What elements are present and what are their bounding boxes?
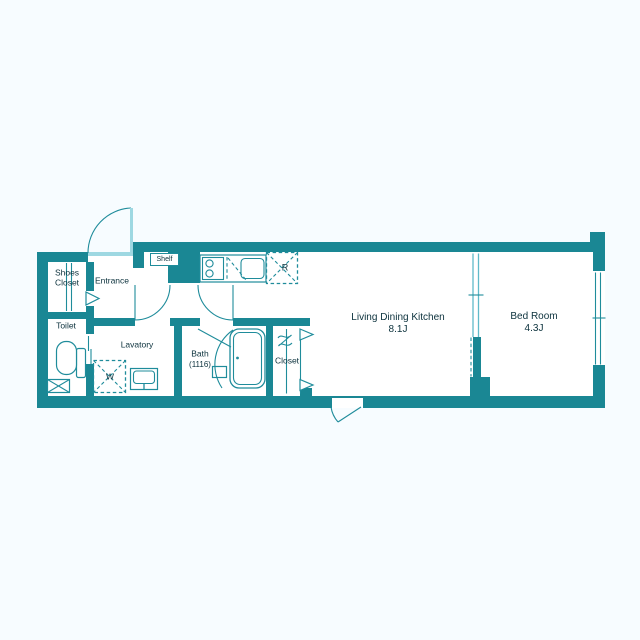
room-label-bath: Bath: [191, 350, 209, 359]
floor-plan: Shelf Shoes Closet Entrance Toilet Lavat…: [0, 0, 640, 640]
room-label-bedroom: Bed Room: [510, 312, 557, 323]
shelf-label: Shelf: [157, 256, 173, 263]
room-label-shoes-closet: Shoes: [55, 269, 79, 278]
balcony-door-leaf: [338, 407, 361, 422]
bath-hall-door-arc: [198, 285, 233, 320]
room-label-closet: Closet: [275, 357, 299, 366]
shelf-label-box: Shelf: [150, 253, 179, 266]
bathtub-outer: [230, 329, 265, 388]
washing-machine-mark: W: [106, 373, 114, 382]
fold-door-arrow-icon: [300, 380, 313, 391]
closet-hanger-icon: [278, 335, 292, 346]
toilet-tank: [77, 349, 86, 378]
room-label-toilet: Toilet: [56, 322, 76, 331]
room-label-bedroom-area: 4.3J: [525, 324, 544, 335]
bathtub-handle: [236, 357, 239, 360]
room-label-shoes-closet: Closet: [55, 279, 79, 288]
entrance-door-arc: [88, 208, 131, 253]
room-label-ldk-area: 8.1J: [389, 325, 408, 336]
room-label-lavatory: Lavatory: [121, 341, 154, 350]
fold-door-arrow-icon: [86, 292, 99, 305]
room-label-ldk: Living Dining Kitchen: [351, 313, 444, 324]
lavatory-door-arc: [135, 285, 170, 320]
room-label-entrance: Entrance: [95, 277, 129, 286]
balcony-door-arc: [331, 407, 338, 422]
toilet-bowl: [57, 342, 77, 375]
refrigerator-mark: R: [282, 263, 289, 272]
bath-door-leaf: [198, 329, 231, 347]
room-label-bath-dimension: (1116): [189, 361, 211, 369]
fold-door-arrow-icon: [300, 329, 313, 340]
